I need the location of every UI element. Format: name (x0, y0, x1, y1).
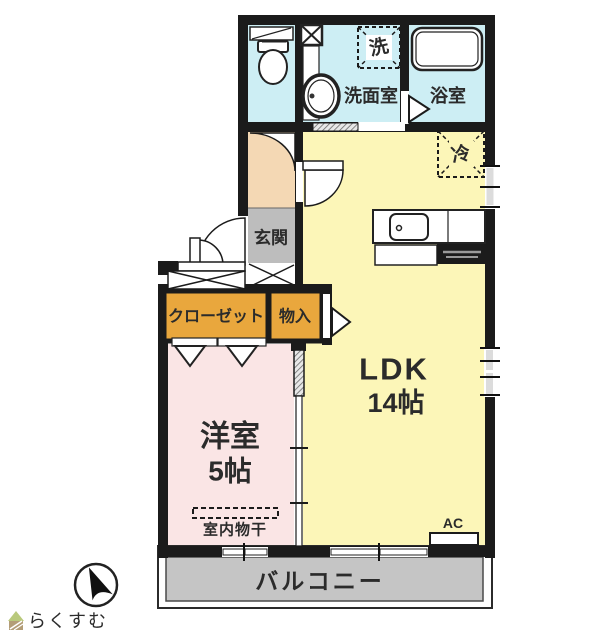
wall-left-mid (238, 132, 248, 216)
partition-sliding-door (296, 396, 302, 546)
wall-right (485, 15, 495, 558)
wall-left-upper (238, 15, 248, 132)
washroom-label: 洗面室 (344, 85, 398, 106)
ldk-door-opening (296, 162, 303, 202)
indoor-laundry-label: 室内物干 (203, 521, 267, 539)
kitchen-stove (437, 244, 486, 264)
kitchen (373, 210, 486, 265)
closet-label: クローゼット (168, 307, 264, 326)
storage-label: 物入 (279, 307, 311, 326)
closet-track-left (172, 338, 217, 346)
ldk-name-label: LDK (359, 352, 429, 387)
western-size-label: 5帖 (208, 456, 252, 487)
logo-house-icon (8, 611, 24, 630)
balcony-label: バルコニー (255, 568, 385, 594)
wall-top (238, 15, 495, 25)
floor-plan-page: バルコニー (0, 0, 606, 640)
logo-text: らくすむ (28, 611, 108, 631)
entrance-label: 玄関 (254, 228, 288, 248)
western-name-label: 洋室 (200, 420, 260, 454)
kitchen-sink (390, 214, 428, 240)
washroom-opening (358, 122, 405, 131)
storage-door-opening (323, 294, 330, 338)
partition-pocket (294, 350, 304, 396)
bathroom-label: 浴室 (430, 85, 466, 106)
compass-icon (75, 563, 117, 606)
bathtub-fixture (412, 28, 482, 70)
floor-plan: バルコニー (0, 0, 606, 640)
bathtub-inner (416, 32, 478, 66)
ac-box (430, 533, 478, 545)
entrance-door-leaf (190, 238, 200, 265)
ldk-door-leaf (303, 161, 343, 170)
wall-bottom (158, 546, 495, 557)
bathroom-door-opening (401, 91, 409, 124)
wall-hallway-ldk (295, 132, 303, 290)
entrance-step (178, 262, 245, 271)
site-logo: らくすむ (8, 611, 108, 631)
ac-label: AC (443, 515, 463, 531)
toilet-bowl (259, 50, 287, 84)
kitchen-lower-counter (375, 245, 437, 265)
basin-drain (310, 94, 315, 99)
washroom-sliding-door (313, 123, 358, 131)
closet-track-right (218, 338, 266, 346)
ldk-size-label: 14帖 (367, 388, 424, 418)
